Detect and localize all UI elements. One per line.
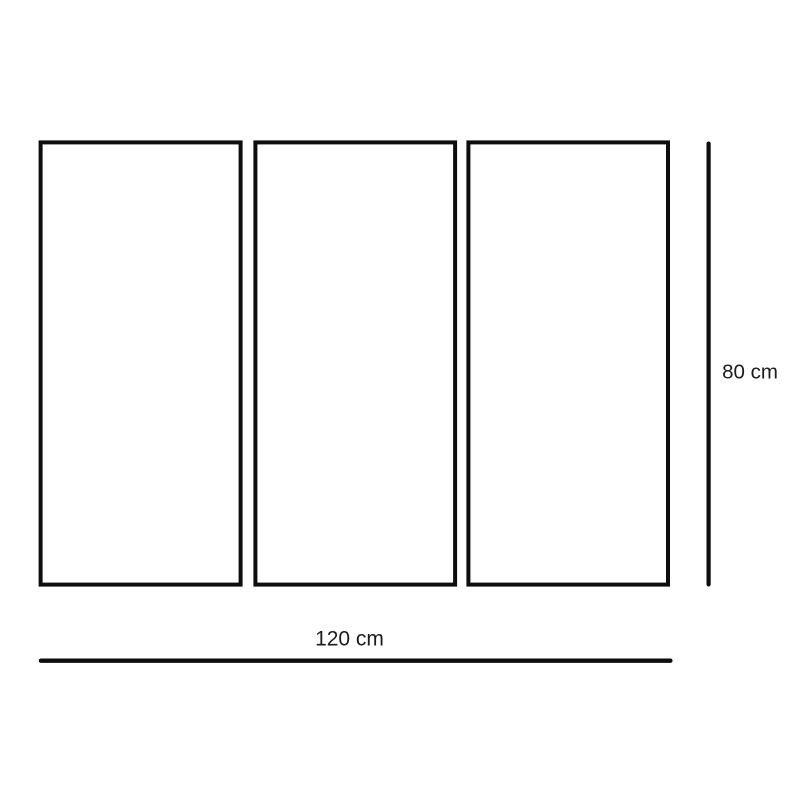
svg-text:120 cm: 120 cm <box>315 628 384 651</box>
svg-text:80 cm: 80 cm <box>722 361 778 384</box>
